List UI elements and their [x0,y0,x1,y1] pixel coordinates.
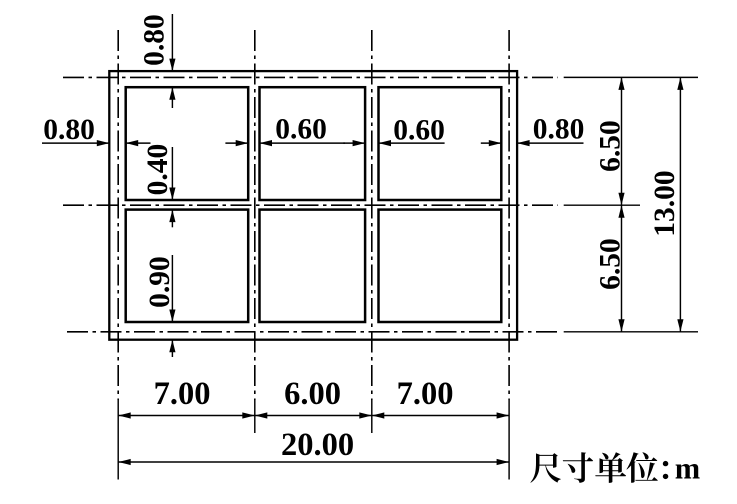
svg-text:m: m [675,452,700,486]
svg-text:7.00: 7.00 [397,376,454,412]
svg-text:0.80: 0.80 [139,14,171,66]
svg-text:7.00: 7.00 [154,376,211,412]
svg-text:0.60: 0.60 [393,115,445,147]
svg-text:13.00: 13.00 [649,170,681,236]
svg-text:6.50: 6.50 [595,120,627,172]
svg-text:0.60: 0.60 [275,114,327,146]
svg-text:0.80: 0.80 [533,114,585,146]
svg-text:20.00: 20.00 [281,427,354,463]
svg-text:0.90: 0.90 [144,256,176,308]
svg-text:6.00: 6.00 [284,376,341,412]
svg-text:0.40: 0.40 [142,144,174,196]
svg-text:6.50: 6.50 [595,238,627,290]
svg-text:0.80: 0.80 [43,114,95,146]
